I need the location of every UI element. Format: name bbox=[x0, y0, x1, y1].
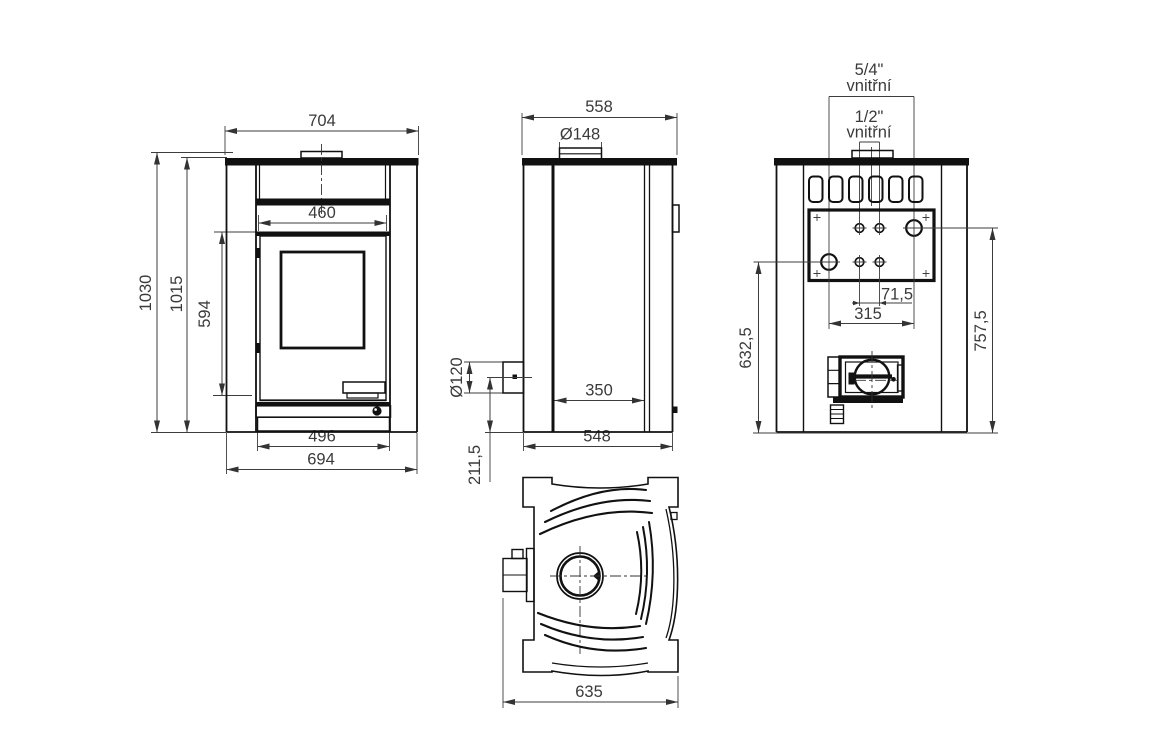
damper-ratchet-ribs bbox=[831, 410, 844, 419]
rear-panel-corner-marks bbox=[814, 214, 930, 277]
side-rear-inner-walls bbox=[645, 166, 650, 433]
rear-view: 5/4" vnitřní 1/2" vnitřní bbox=[737, 61, 998, 433]
front-view: 704 460 1030 1015 594 496 694 bbox=[137, 112, 419, 474]
stub-top-tab bbox=[512, 550, 523, 559]
dim-front-base-inner-label: 496 bbox=[308, 428, 336, 446]
rear-flue-damper-assembly bbox=[828, 351, 904, 424]
vent-slot bbox=[849, 177, 863, 203]
front-door-glass bbox=[281, 252, 364, 348]
front-drawer-knob-highlight bbox=[374, 408, 377, 411]
rear-large-fitting-note-label: vnitřní bbox=[847, 77, 892, 95]
side-view: 558 Ø148 Ø120 350 211,5 548 bbox=[448, 98, 679, 485]
dim-rear-upper-height-label: 757,5 bbox=[972, 310, 990, 351]
rear-small-fittings bbox=[853, 221, 887, 269]
small-fitting-crosshairs bbox=[853, 221, 887, 269]
dim-plan-depth-label: 635 bbox=[575, 683, 603, 701]
surface-arc bbox=[636, 532, 641, 614]
dim-side-firebox-depth-label: 350 bbox=[585, 382, 613, 400]
rear-top-plate bbox=[774, 158, 969, 166]
dim-front-base-outer-label: 694 bbox=[307, 451, 335, 469]
dim-rear-large-spacing-label: 315 bbox=[854, 305, 882, 323]
damper-left-bracket bbox=[828, 357, 840, 397]
rear-vent-row bbox=[809, 177, 923, 203]
dim-side-base-depth-label: 548 bbox=[583, 428, 611, 446]
front-door-frame bbox=[260, 236, 386, 401]
damper-bottom-plate bbox=[833, 397, 903, 403]
dim-side-flue-diameter-label: Ø148 bbox=[560, 126, 600, 144]
vent-slot bbox=[829, 177, 843, 203]
front-niche-inner-lines bbox=[260, 166, 386, 199]
dim-rear-lower-height-label: 632,5 bbox=[737, 327, 755, 368]
side-top-plate bbox=[522, 158, 677, 166]
plan-surface-arcs bbox=[538, 489, 653, 651]
surface-arc bbox=[538, 613, 640, 628]
surface-arc bbox=[540, 512, 652, 534]
surface-arc bbox=[545, 635, 646, 651]
dim-side-outlet-height-label: 211,5 bbox=[466, 445, 484, 485]
damper-left-tab bbox=[849, 373, 855, 385]
front-drawer-knob bbox=[372, 406, 381, 415]
dim-front-door-height-label: 594 bbox=[196, 300, 214, 328]
technical-drawing-page: 704 460 1030 1015 594 496 694 558 bbox=[0, 0, 1152, 752]
damper-left-bracket-dividers bbox=[828, 370, 840, 383]
vent-slot bbox=[869, 177, 883, 203]
plan-view: 635 bbox=[503, 478, 678, 709]
side-door-handle bbox=[673, 205, 680, 232]
dim-rear-small-spacing-label: 71,5 bbox=[881, 286, 913, 304]
vent-slot bbox=[889, 177, 903, 203]
side-drawer-knob bbox=[673, 407, 678, 414]
rear-large-fittings bbox=[818, 217, 925, 273]
side-rear-outlet-mark bbox=[513, 375, 518, 380]
damper-pivot-dot bbox=[891, 377, 896, 382]
front-door-handle bbox=[343, 382, 385, 393]
large-fitting-crosshairs bbox=[818, 217, 925, 273]
dim-front-top-width-label: 704 bbox=[308, 112, 336, 130]
dim-side-top-depth-label: 558 bbox=[585, 98, 613, 116]
rear-small-fitting-note-label: vnitřní bbox=[847, 124, 892, 142]
dim-front-total-height-label: 1030 bbox=[137, 275, 155, 312]
stove-technical-drawing: 704 460 1030 1015 594 496 694 558 bbox=[0, 0, 1152, 752]
dim-front-door-width-label: 460 bbox=[308, 204, 336, 222]
rear-flue-stub bbox=[852, 151, 893, 159]
dim-front-body-height-label: 1015 bbox=[168, 276, 186, 313]
vent-slot bbox=[909, 177, 923, 203]
front-extension-lines bbox=[151, 126, 419, 474]
front-niche-bottom-bar bbox=[256, 199, 390, 206]
vent-slot bbox=[809, 177, 823, 203]
dim-side-outlet-diameter-label: Ø120 bbox=[448, 357, 466, 397]
plan-bottom-contour-arc bbox=[552, 663, 648, 667]
front-ash-drawer bbox=[256, 406, 391, 417]
plan-rear-outlet-stub bbox=[503, 549, 534, 602]
